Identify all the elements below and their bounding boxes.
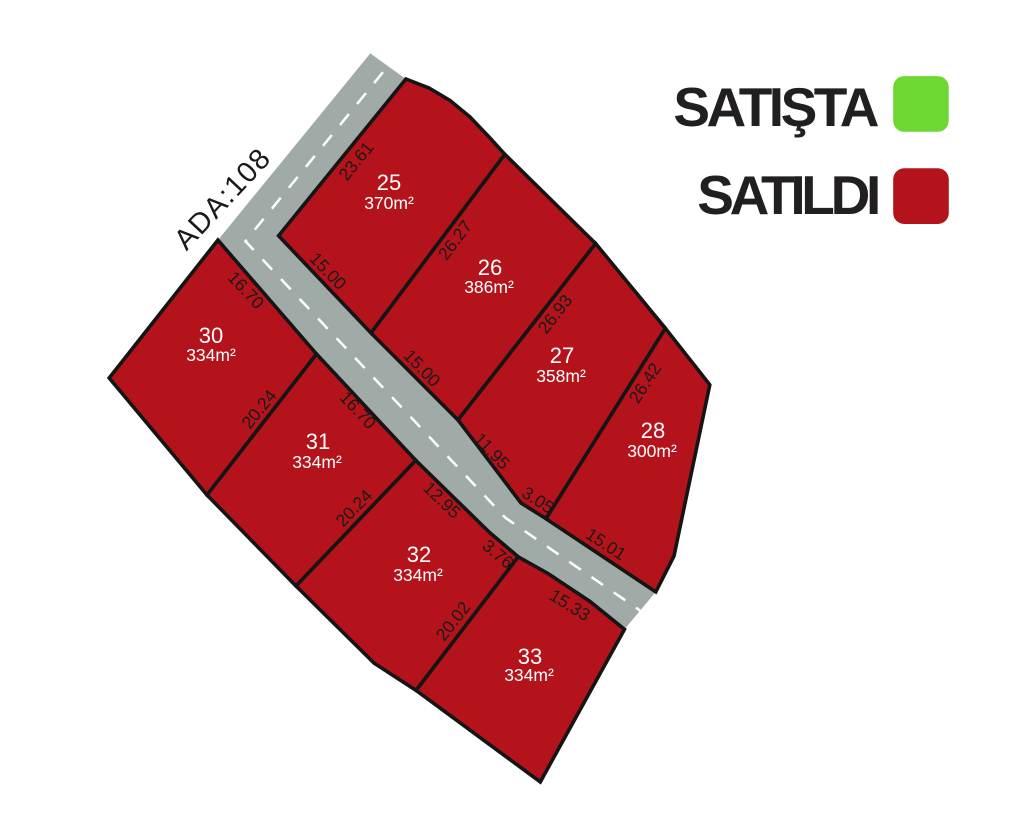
- svg-text:27: 27: [550, 343, 574, 368]
- svg-text:32: 32: [407, 542, 431, 567]
- svg-text:334m²: 334m²: [186, 345, 236, 365]
- svg-text:SATIŞTA: SATIŞTA: [673, 76, 878, 138]
- svg-text:25: 25: [377, 170, 401, 195]
- svg-text:334m²: 334m²: [393, 565, 443, 585]
- svg-text:28: 28: [641, 418, 665, 443]
- svg-text:31: 31: [306, 429, 330, 454]
- svg-text:358m²: 358m²: [536, 366, 586, 386]
- svg-text:370m²: 370m²: [364, 193, 414, 213]
- svg-text:334m²: 334m²: [504, 665, 554, 685]
- svg-text:386m²: 386m²: [464, 277, 514, 297]
- svg-text:334m²: 334m²: [292, 452, 342, 472]
- svg-text:SATILDI: SATILDI: [697, 164, 878, 226]
- svg-text:300m²: 300m²: [627, 441, 677, 461]
